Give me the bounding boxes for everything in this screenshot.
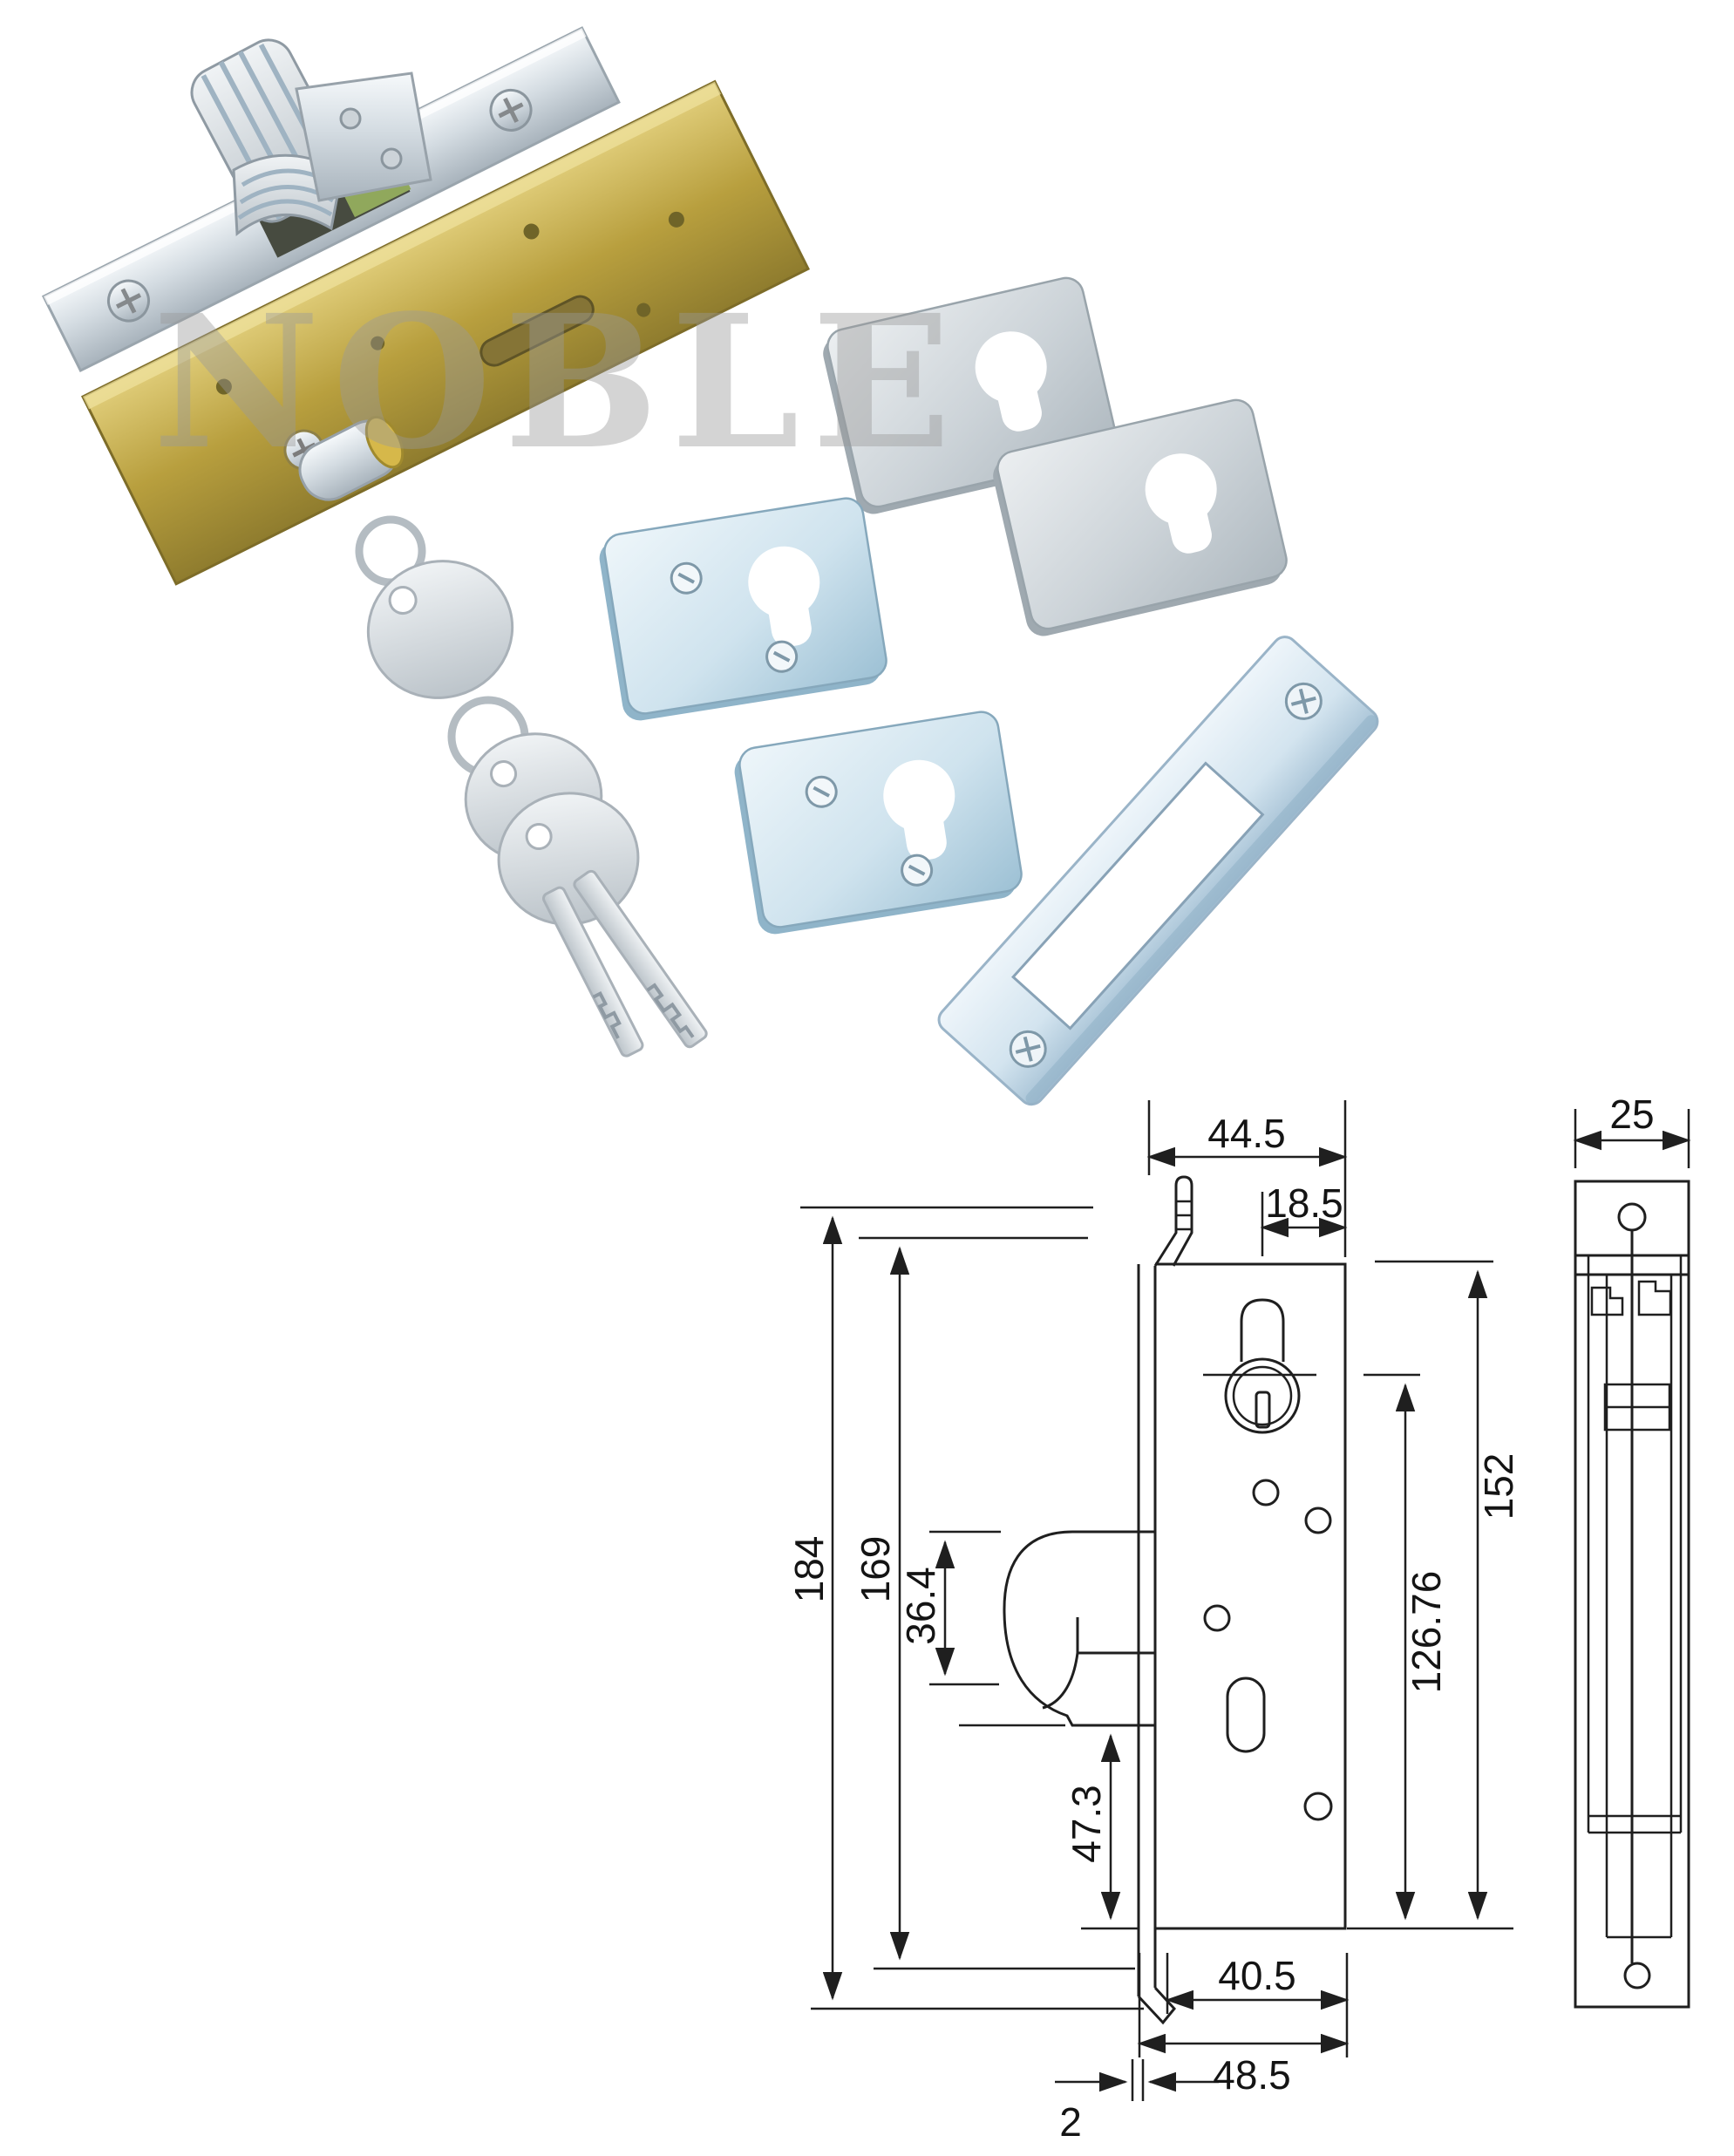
dim-hook-height: 36.4 <box>898 1567 943 1645</box>
product-listing-image: NOBLE <box>0 0 1734 2156</box>
dimension-labels: 44.5 18.5 184 169 36.4 47.3 126.76 152 4… <box>786 1092 1655 2145</box>
faceplate-bottom-lip <box>1139 1988 1174 2023</box>
hook-bolt-outline <box>1004 1532 1155 1725</box>
case-hole <box>1205 1606 1229 1630</box>
dim-case-height: 152 <box>1476 1453 1521 1520</box>
cylinder-cutout <box>1203 1300 1316 1432</box>
technical-drawing: 44.5 18.5 184 169 36.4 47.3 126.76 152 4… <box>786 1092 1689 2145</box>
faceplate-top-tab <box>1155 1177 1192 1266</box>
dim-cylinder-to-edge: 18.5 <box>1265 1180 1343 1226</box>
product-photo: NOBLE <box>44 28 1383 1109</box>
case-oval-slot <box>1227 1678 1264 1751</box>
dim-faceplate-height: 184 <box>786 1536 832 1603</box>
side-view <box>1575 1181 1689 2007</box>
escutcheon-plate-blue-2 <box>731 710 1025 936</box>
front-view <box>1004 1177 1345 2023</box>
case-hole <box>1254 1480 1278 1505</box>
faceplate-lines <box>1139 1264 1155 1996</box>
key <box>352 544 529 715</box>
dim-cylinder-axis-to-bottom: 126.76 <box>1404 1571 1449 1694</box>
dim-width-bottom-overall: 48.5 <box>1213 2052 1291 2098</box>
hook-bracket <box>296 73 431 201</box>
watermark-text: NOBLE <box>153 275 963 490</box>
lock-case-outline <box>1155 1264 1345 1928</box>
escutcheon-plate-blue-1 <box>596 496 890 723</box>
dim-hook-to-bottom: 47.3 <box>1064 1785 1109 1863</box>
dim-width-top: 44.5 <box>1207 1111 1286 1156</box>
lock-product-scene: NOBLE <box>0 0 1734 2156</box>
dim-inner-height: 169 <box>853 1536 898 1603</box>
side-screw-hole <box>1625 1963 1649 1988</box>
case-hole <box>1305 1793 1331 1819</box>
dim-side-width: 25 <box>1609 1092 1654 1137</box>
side-screw-hole <box>1619 1204 1645 1230</box>
dim-width-bottom-inner: 40.5 <box>1218 1953 1296 1998</box>
case-hole <box>1306 1508 1330 1533</box>
dim-plate-thickness: 2 <box>1059 2099 1082 2145</box>
